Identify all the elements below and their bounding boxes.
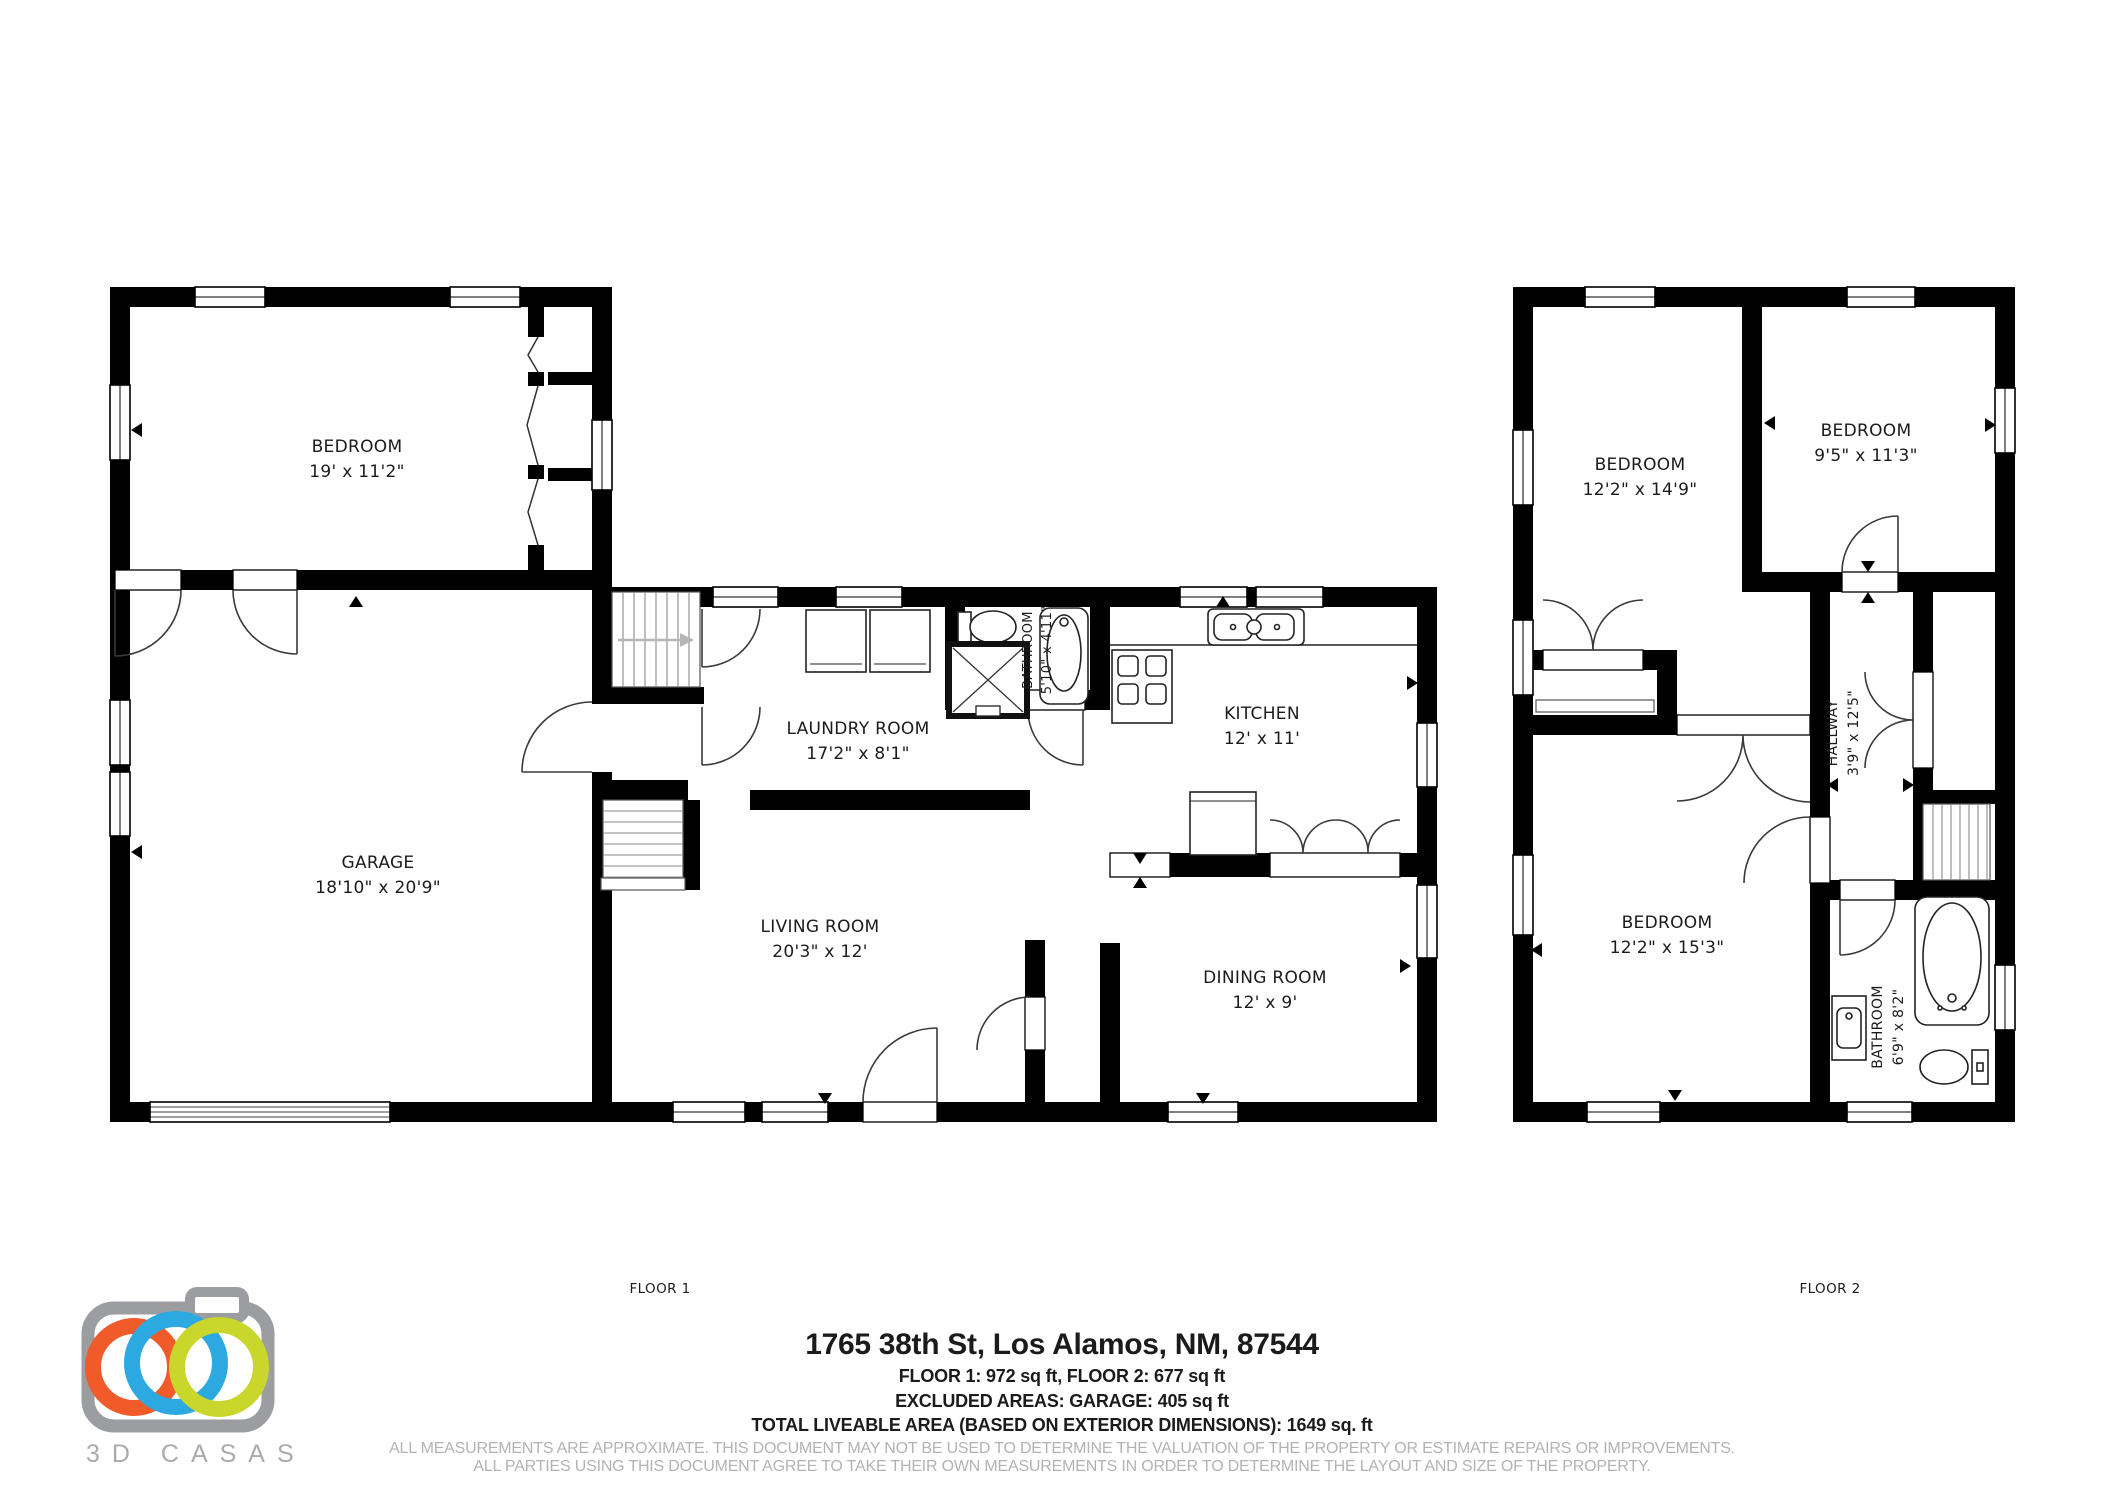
room-dims: 3'9" x 12'5"	[1844, 690, 1865, 776]
floor1-stairs-lower	[601, 800, 685, 890]
room-name: HALLWAY	[1823, 690, 1844, 776]
room-dims: 12' x 11'	[1224, 727, 1300, 752]
room-dims: 17'2" x 8'1"	[786, 742, 929, 767]
room-dims: 19' x 11'2"	[309, 460, 404, 485]
room-name: BEDROOM	[1583, 453, 1698, 478]
floor2-closet-shelf	[1536, 700, 1654, 712]
room-name: BATHROOM	[1019, 606, 1038, 695]
room-label-kitchen: KITCHEN 12' x 11'	[1224, 702, 1300, 752]
room-label-bedroom-f1: BEDROOM 19' x 11'2"	[309, 435, 404, 485]
room-label-hallway: HALLWAY 3'9" x 12'5"	[1823, 690, 1865, 776]
room-dims: 12'2" x 14'9"	[1583, 478, 1698, 503]
logo-camera-icon	[88, 1292, 268, 1426]
floorplan-document: BEDROOM 19' x 11'2" GARAGE 18'10" x 20'9…	[0, 0, 2109, 1491]
room-label-garage: GARAGE 18'10" x 20'9"	[315, 851, 441, 901]
garage-door	[150, 1102, 390, 1122]
floor1-bedroom-closet	[527, 307, 592, 570]
disclaimer-line1: ALL MEASUREMENTS ARE APPROXIMATE. THIS D…	[389, 1440, 1735, 1458]
room-name: BEDROOM	[1610, 911, 1725, 936]
room-name: BEDROOM	[309, 435, 404, 460]
room-name: BEDROOM	[1814, 419, 1918, 444]
floor2-stairs	[1923, 804, 1990, 880]
room-label-dining-room: DINING ROOM 12' x 9'	[1203, 966, 1327, 1016]
logo-text: 3D CASAS	[86, 1440, 306, 1469]
area-summary-floors: FLOOR 1: 972 sq ft, FLOOR 2: 677 sq ft	[899, 1366, 1225, 1387]
room-dims: 20'3" x 12'	[761, 940, 880, 965]
room-label-bedroom2-f2: BEDROOM 9'5" x 11'3"	[1814, 419, 1918, 469]
room-name: GARAGE	[315, 851, 441, 876]
area-summary-excluded: EXCLUDED AREAS: GARAGE: 405 sq ft	[895, 1391, 1229, 1412]
room-name: KITCHEN	[1224, 702, 1300, 727]
room-dims: 12' x 9'	[1203, 991, 1327, 1016]
floor2-bathroom-fixtures	[1832, 897, 1989, 1084]
room-label-bedroom3-f2: BEDROOM 12'2" x 15'3"	[1610, 911, 1725, 961]
room-name: DINING ROOM	[1203, 966, 1327, 991]
room-label-bathroom-f1: BATHROOM 5'10" x 4'11"	[1019, 606, 1057, 695]
room-dims: 12'2" x 15'3"	[1610, 936, 1725, 961]
area-summary-total: TOTAL LIVEABLE AREA (BASED ON EXTERIOR D…	[751, 1415, 1372, 1436]
room-name: LAUNDRY ROOM	[786, 717, 929, 742]
floor1-tag: FLOOR 1	[629, 1281, 690, 1297]
floorplan-drawing	[0, 0, 2109, 1491]
floor1-stairs-upper	[612, 592, 700, 687]
floor1-laundry-fixtures	[806, 610, 930, 672]
floor2-tag: FLOOR 2	[1799, 1281, 1860, 1297]
room-label-laundry: LAUNDRY ROOM 17'2" x 8'1"	[786, 717, 929, 767]
room-label-living-room: LIVING ROOM 20'3" x 12'	[761, 915, 880, 965]
address: 1765 38th St, Los Alamos, NM, 87544	[805, 1328, 1319, 1362]
room-label-bedroom1-f2: BEDROOM 12'2" x 14'9"	[1583, 453, 1698, 503]
room-name: BATHROOM	[1868, 985, 1889, 1068]
room-dims: 18'10" x 20'9"	[315, 876, 441, 901]
disclaimer-line2: ALL PARTIES USING THIS DOCUMENT AGREE TO…	[473, 1458, 1650, 1476]
room-dims: 9'5" x 11'3"	[1814, 444, 1918, 469]
room-name: LIVING ROOM	[761, 915, 880, 940]
room-dims: 6'9" x 8'2"	[1889, 985, 1910, 1068]
room-label-bathroom-f2: BATHROOM 6'9" x 8'2"	[1868, 985, 1910, 1068]
room-dims: 5'10" x 4'11"	[1038, 606, 1057, 695]
